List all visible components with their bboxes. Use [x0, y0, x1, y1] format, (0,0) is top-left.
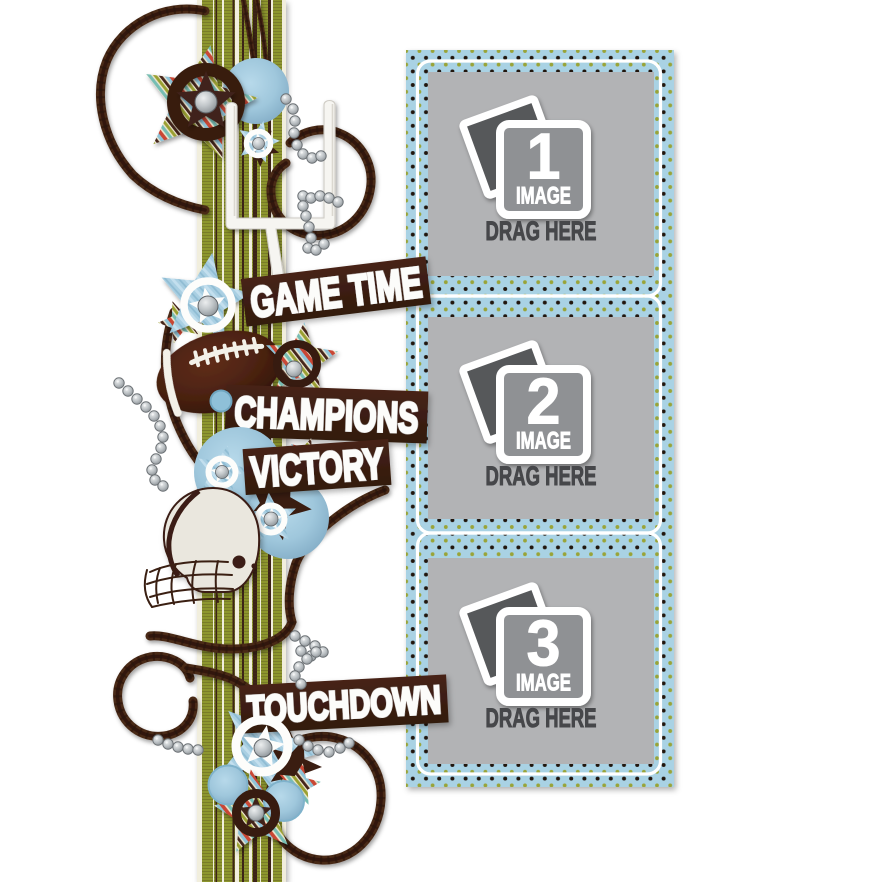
svg-text:VICTORY: VICTORY — [249, 440, 385, 497]
svg-text:DRAG HERE: DRAG HERE — [486, 461, 597, 491]
svg-text:DRAG HERE: DRAG HERE — [486, 216, 597, 246]
svg-text:IMAGE: IMAGE — [516, 428, 571, 455]
svg-text:DRAG HERE: DRAG HERE — [486, 703, 597, 733]
svg-text:IMAGE: IMAGE — [516, 670, 571, 697]
svg-text:IMAGE: IMAGE — [516, 183, 571, 210]
